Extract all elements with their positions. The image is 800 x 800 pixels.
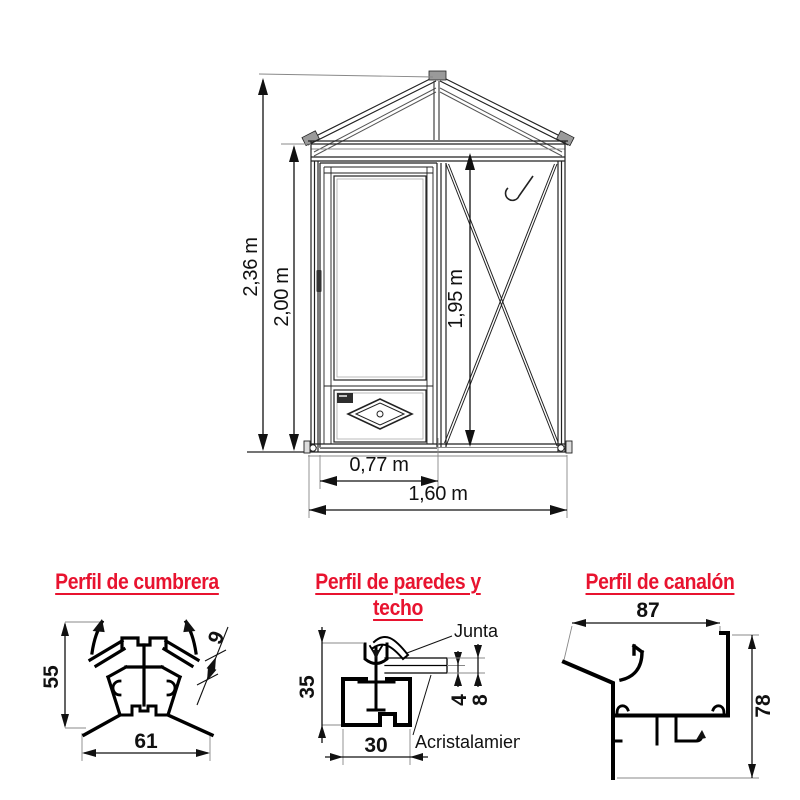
dim-inner-height-label: 1,95 m xyxy=(445,269,467,328)
wall-roof-profile-title: Perfil de paredes y techo xyxy=(301,569,495,621)
dim-wall-height-label: 2,00 m xyxy=(271,267,293,326)
acristalamiento-callout: Acristalamiento xyxy=(413,675,520,752)
dim-door-width: 0,77 m xyxy=(320,438,438,489)
ridge-dim-slot-label: 9 xyxy=(204,628,230,648)
wall-roof-profile-drawing: 35 30 4 8 Junta xyxy=(295,615,520,775)
brand-diamond-logo xyxy=(348,399,412,429)
dim-door-width-label: 0,77 m xyxy=(349,454,408,476)
dim-total-width-label: 1,60 m xyxy=(408,483,467,505)
junta-callout: Junta xyxy=(407,621,499,653)
hanging-hook-icon xyxy=(506,176,533,200)
junta-label: Junta xyxy=(454,621,499,641)
ridge-dim-height-label: 55 xyxy=(40,665,63,689)
gutter-profile-shape xyxy=(564,633,728,778)
technical-drawing-page: 2,36 m 2,00 m 1,95 m 0,77 m xyxy=(0,0,800,800)
wall-dim-glazing-single-label: 4 xyxy=(448,694,471,706)
ridge-dim-slot: 9 xyxy=(197,627,229,705)
door-glass xyxy=(334,176,426,380)
door-handle xyxy=(317,270,322,292)
eave-band xyxy=(308,141,568,161)
wall-dim-glazing-total-label: 8 xyxy=(469,694,492,706)
gutter-dim-width-label: 87 xyxy=(636,600,659,622)
dim-wall-height: 2,00 m xyxy=(271,144,311,451)
wall-dim-width-label: 30 xyxy=(364,734,387,757)
ridge-dim-width-label: 61 xyxy=(134,730,158,753)
ridge-profile-title: Perfil de cumbrera xyxy=(49,569,225,595)
wall-dim-glazing-single: 4 xyxy=(447,651,471,706)
wall-dim-width: 30 xyxy=(325,729,428,765)
wall-dim-height-label: 35 xyxy=(296,675,319,699)
door xyxy=(317,163,438,448)
gutter-profile-title: Perfil de canalón xyxy=(563,569,757,595)
greenhouse-elevation: 2,36 m 2,00 m 1,95 m 0,77 m xyxy=(0,0,800,555)
roof xyxy=(302,71,574,156)
wall-profile-shape xyxy=(343,637,447,725)
ridge-profile-shape xyxy=(84,617,212,735)
junta-seal xyxy=(373,637,408,659)
wall-posts xyxy=(311,161,565,452)
ridge-dim-width: 61 xyxy=(82,730,210,761)
gutter-dim-height-label: 78 xyxy=(752,694,775,718)
ridge-profile-drawing: 55 61 9 xyxy=(40,605,240,775)
gable-post xyxy=(434,81,439,140)
glazing-panel xyxy=(385,658,447,673)
apex-plate xyxy=(429,71,446,80)
door-label-chip xyxy=(337,393,353,403)
acristalamiento-label: Acristalamiento xyxy=(415,732,520,752)
dim-total-height-label: 2,36 m xyxy=(240,237,262,296)
gutter-profile-drawing: 87 78 xyxy=(560,600,775,785)
